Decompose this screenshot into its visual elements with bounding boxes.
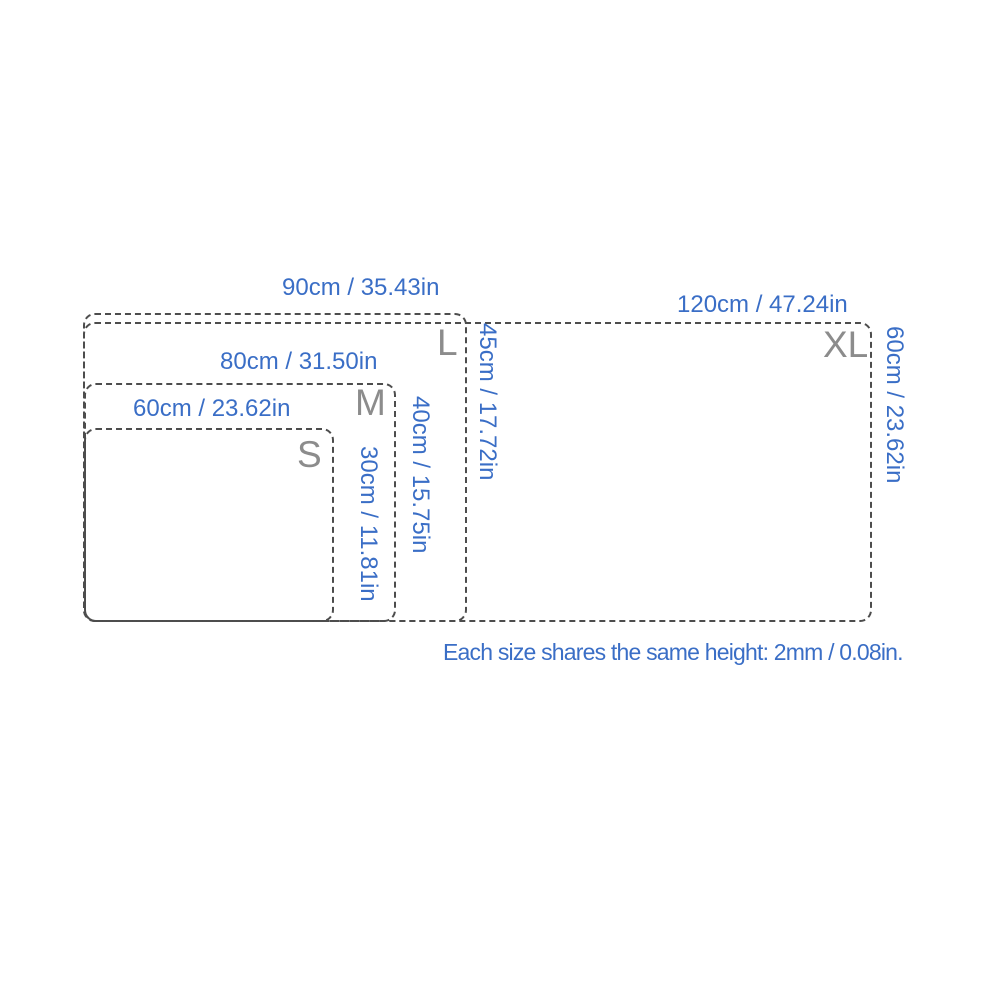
size-letter-xl: XL <box>823 326 868 363</box>
shared-height-note: Each size shares the same height: 2mm / … <box>443 639 903 665</box>
width-label-l: 90cm / 35.43in <box>282 276 439 300</box>
height-label-m: 40cm / 15.75in <box>408 396 432 553</box>
size-letter-l: L <box>437 324 458 361</box>
height-label-xl: 60cm / 23.62in <box>882 326 906 483</box>
height-label-s: 30cm / 11.81in <box>356 446 380 602</box>
size-letter-m: M <box>355 384 386 421</box>
width-label-xl: 120cm / 47.24in <box>677 293 848 317</box>
width-label-s: 60cm / 23.62in <box>133 397 290 421</box>
size-comparison-diagram: 90cm / 35.43in 120cm / 47.24in 80cm / 31… <box>0 0 1000 1000</box>
size-letter-s: S <box>297 436 322 473</box>
width-label-m: 80cm / 31.50in <box>220 350 377 374</box>
height-label-l: 45cm / 17.72in <box>475 323 499 480</box>
